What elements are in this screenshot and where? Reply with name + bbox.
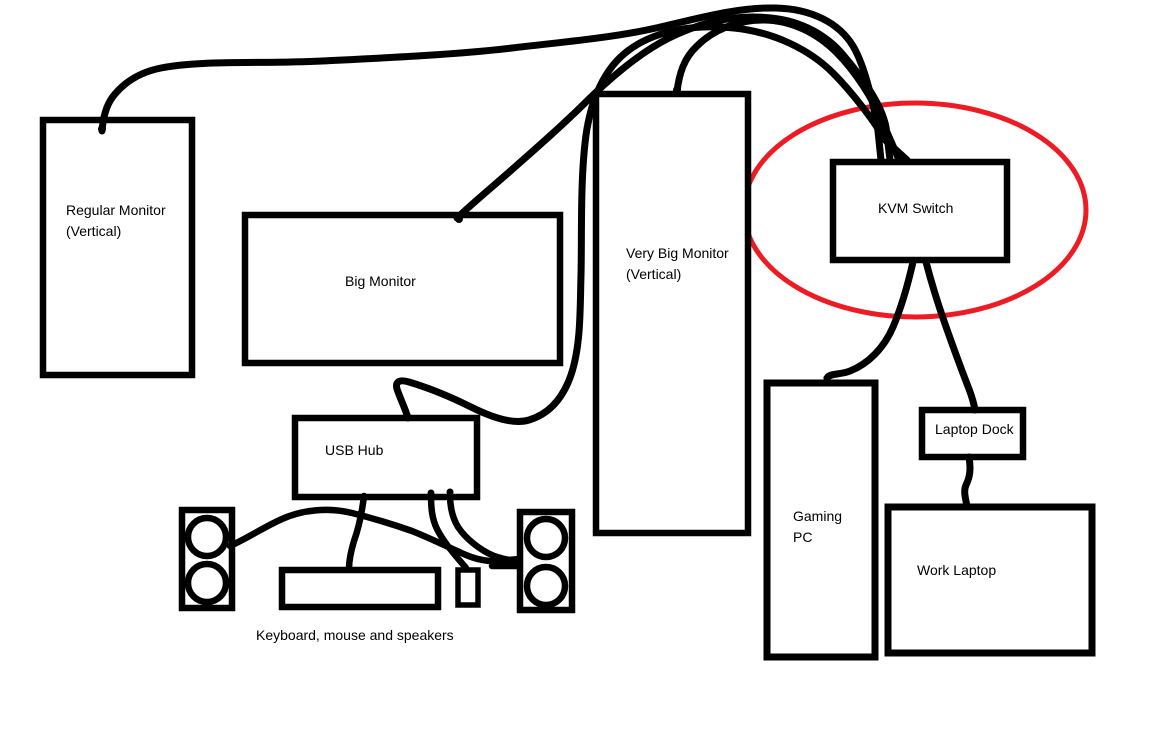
regular-monitor-label-line2: (Vertical) [66,221,166,242]
big-monitor-cable-dot [455,215,463,223]
regular-monitor-label: Regular Monitor (Vertical) [66,200,166,242]
laptop-dock-label: Laptop Dock [935,419,1014,440]
cable-left-speaker-to-right-speaker [230,510,519,561]
regular-monitor-box [43,120,192,375]
cable-kvm-switch-to-gaming-pc [827,262,913,383]
cable-laptop-dock-to-work-laptop [965,457,970,507]
gaming-pc-label-line2: PC [793,527,842,548]
diagram-caption: Keyboard, mouse and speakers [256,625,454,646]
regular-monitor-label-line1: Regular Monitor [66,200,166,221]
very-big-monitor-label-line2: (Vertical) [626,264,729,285]
usb-hub-box [295,418,477,497]
paint-canvas: Regular Monitor (Vertical) Big Monitor V… [0,0,1152,738]
cable-usb-hub-to-keyboard [349,496,364,569]
usb-hub-port-dot-2 [447,489,454,496]
usb-hub-label: USB Hub [325,440,383,461]
very-big-monitor-cable-dot [673,86,681,94]
regular-monitor-cable-dot [98,125,106,133]
very-big-monitor-label: Very Big Monitor (Vertical) [626,243,729,285]
gaming-pc-label: Gaming PC [793,506,842,548]
very-big-monitor-label-line1: Very Big Monitor [626,243,729,264]
usb-hub-port-dot-1 [428,490,435,497]
keyboard-shape [282,570,438,607]
kvm-switch-label: KVM Switch [878,198,953,219]
gaming-pc-label-line1: Gaming [793,506,842,527]
diagram-drawing [0,0,1152,738]
mouse-shape [458,570,478,605]
big-monitor-label: Big Monitor [345,271,416,292]
work-laptop-label: Work Laptop [917,560,996,581]
cable-kvm-switch-to-laptop-dock [926,262,975,410]
very-big-monitor-box [596,94,748,533]
